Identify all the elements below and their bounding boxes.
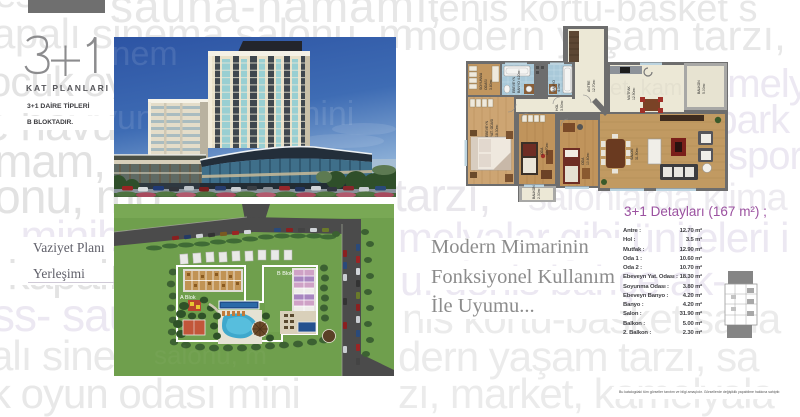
svg-text:B Blok: B Blok [277, 271, 293, 277]
svg-text:BANYO 4.20m²: BANYO 4.20m² [517, 69, 521, 93]
svg-text:SOYUNMA: SOYUNMA [479, 72, 483, 90]
svg-text:3.50m²: 3.50m² [560, 100, 564, 111]
svg-text:SALON: SALON [630, 148, 634, 160]
svg-text:2.30m²: 2.30m² [537, 188, 541, 199]
svg-text:10.60m²: 10.60m² [586, 152, 590, 165]
svg-text:ODA: ODA [540, 147, 544, 155]
svg-text:BALKON: BALKON [532, 185, 536, 199]
svg-text:ODA: ODA [581, 157, 585, 165]
svg-text:ODASI: ODASI [484, 79, 488, 90]
svg-text:10.70m²: 10.70m² [545, 142, 549, 155]
svg-text:BALKON: BALKON [697, 80, 701, 94]
svg-text:5.00m²: 5.00m² [702, 83, 706, 94]
svg-text:inem: inem [114, 37, 178, 73]
svg-text:12.70m²: 12.70m² [592, 79, 596, 92]
svg-text:ANTRE: ANTRE [587, 80, 591, 92]
svg-text:EBEVEYN: EBEVEYN [512, 76, 516, 93]
svg-text:HOL: HOL [555, 104, 559, 111]
svg-text:3.80m²: 3.80m² [489, 79, 493, 90]
svg-text:YAT. ODASI: YAT. ODASI [490, 119, 494, 137]
svg-text:et, kam: et, kam [610, 75, 682, 100]
svg-text:4.3m²: 4.3m² [557, 82, 561, 92]
svg-text:31.90m²: 31.90m² [635, 147, 639, 160]
svg-text:18.30m²: 18.30m² [495, 124, 499, 137]
svg-text:EBEVEYN: EBEVEYN [485, 120, 489, 137]
svg-text:BANYO: BANYO [552, 80, 556, 92]
svg-text:salonu, m: salonu, m [154, 340, 267, 370]
